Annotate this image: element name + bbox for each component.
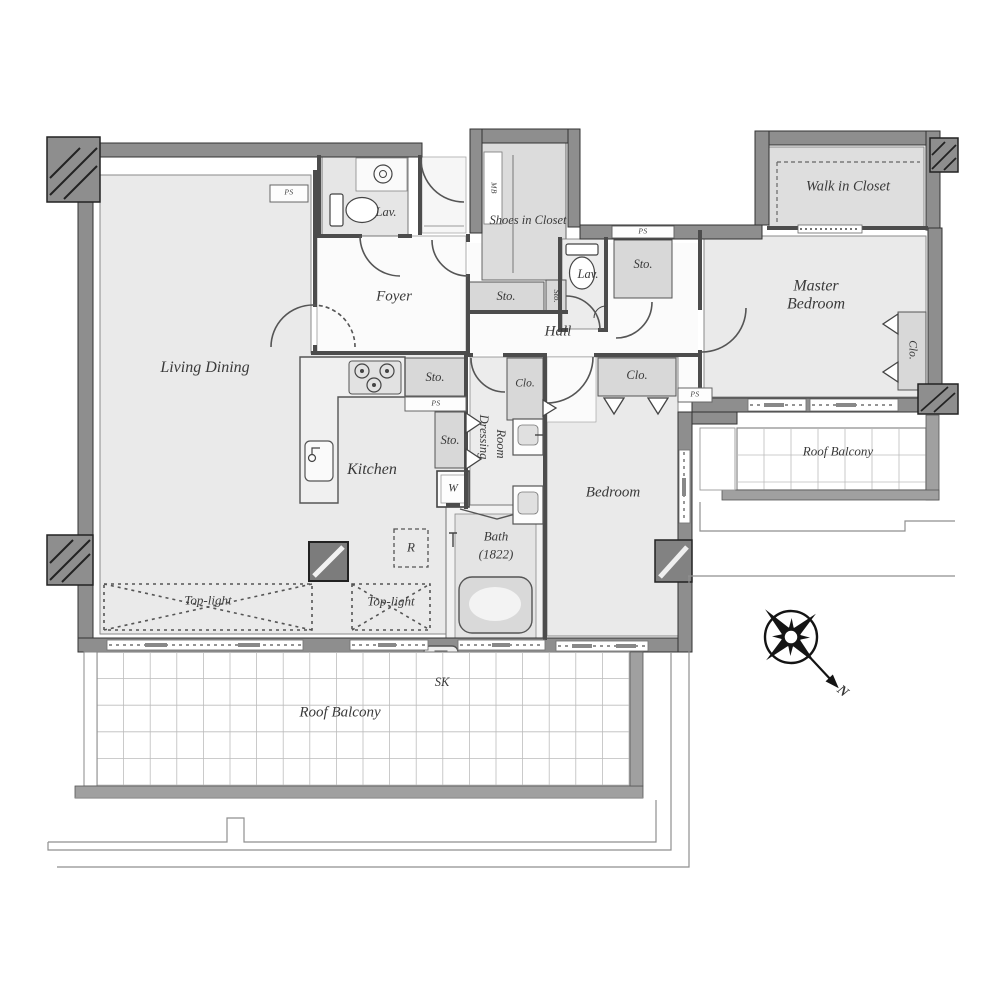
bathtub-icon [459, 577, 532, 633]
stove-icon [349, 361, 401, 394]
floor-plan-canvas [0, 0, 1000, 1000]
floor-plan: Living Dining Kitchen Foyer Hall Lav. La… [0, 0, 1000, 1000]
compass-icon [740, 586, 863, 711]
kitchen-sink-icon [305, 441, 333, 481]
wic-sliding-door [798, 225, 862, 233]
roof-balcony-right [700, 415, 939, 500]
roof-balcony-main [75, 652, 643, 798]
shaft-icon [309, 542, 348, 581]
